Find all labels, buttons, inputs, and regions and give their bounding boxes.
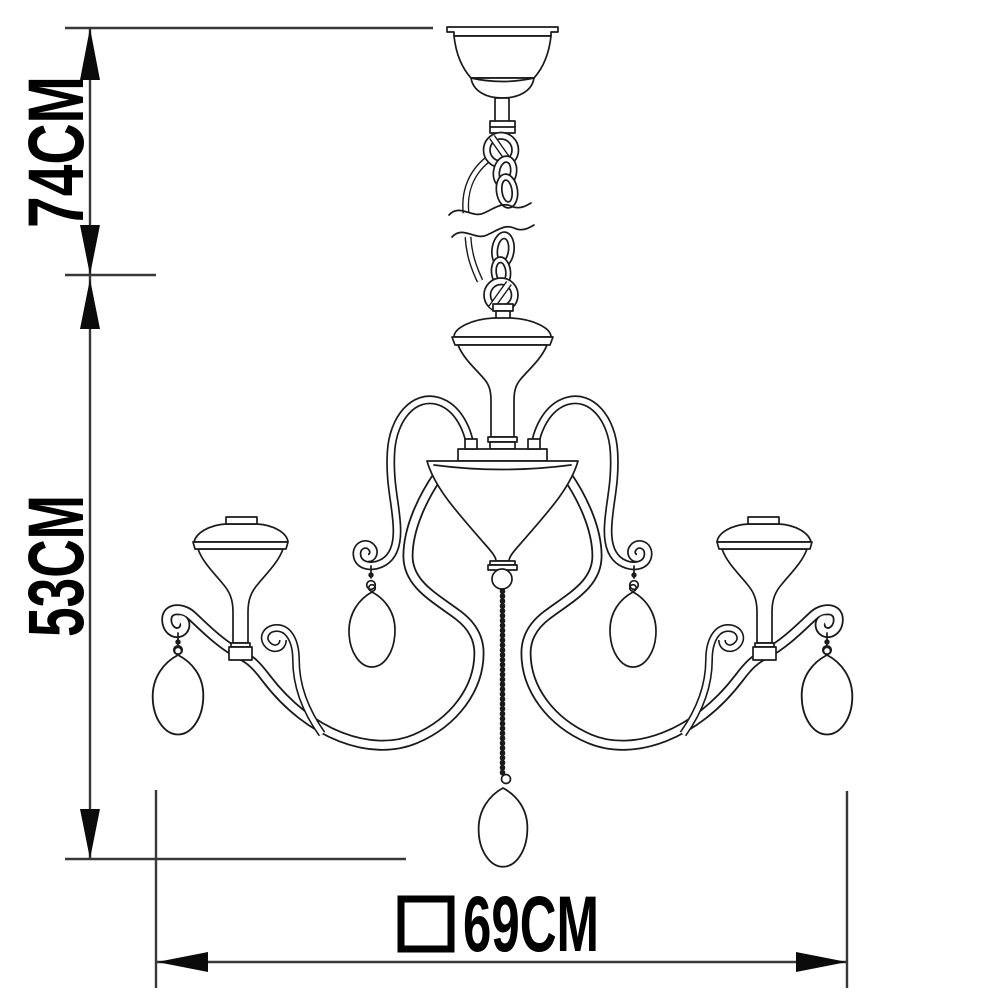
mid-crystal-drop (349, 566, 395, 667)
arrowhead-left-icon (157, 952, 208, 972)
outer-arm (167, 474, 479, 745)
suspension-chain (449, 133, 534, 313)
centre-drop (479, 591, 528, 867)
candle-cup (193, 517, 288, 660)
teardrop-crystal (153, 655, 204, 735)
teardrop-crystal (349, 592, 395, 667)
arm-assembly-right (526, 400, 852, 745)
outer-crystal-drop (153, 633, 204, 735)
arrowhead-up-icon (80, 279, 100, 329)
arrowhead-right-icon (796, 952, 847, 972)
arrowhead-down-icon (80, 809, 100, 859)
ceiling-canopy (447, 27, 558, 133)
arm-hub (458, 449, 547, 461)
dimension-label-hang-height: 74CM (11, 76, 100, 228)
chandelier-dimension-drawing: 74CM 53CM 69CM (0, 0, 1000, 1000)
arrowhead-down-icon (80, 225, 100, 275)
central-column (427, 27, 578, 867)
teardrop-crystal (479, 788, 528, 867)
drawing-svg: 74CM 53CM 69CM (0, 0, 1000, 1000)
arm-assembly-left (153, 400, 479, 745)
arrowhead-up-icon (80, 28, 100, 80)
central-cone (427, 461, 578, 589)
square-symbol-icon (401, 899, 451, 949)
dimension-annotations: 74CM 53CM 69CM (11, 28, 847, 988)
dimension-label-body-height: 53CM (11, 495, 100, 637)
dimension-label-width: 69CM (463, 879, 599, 968)
